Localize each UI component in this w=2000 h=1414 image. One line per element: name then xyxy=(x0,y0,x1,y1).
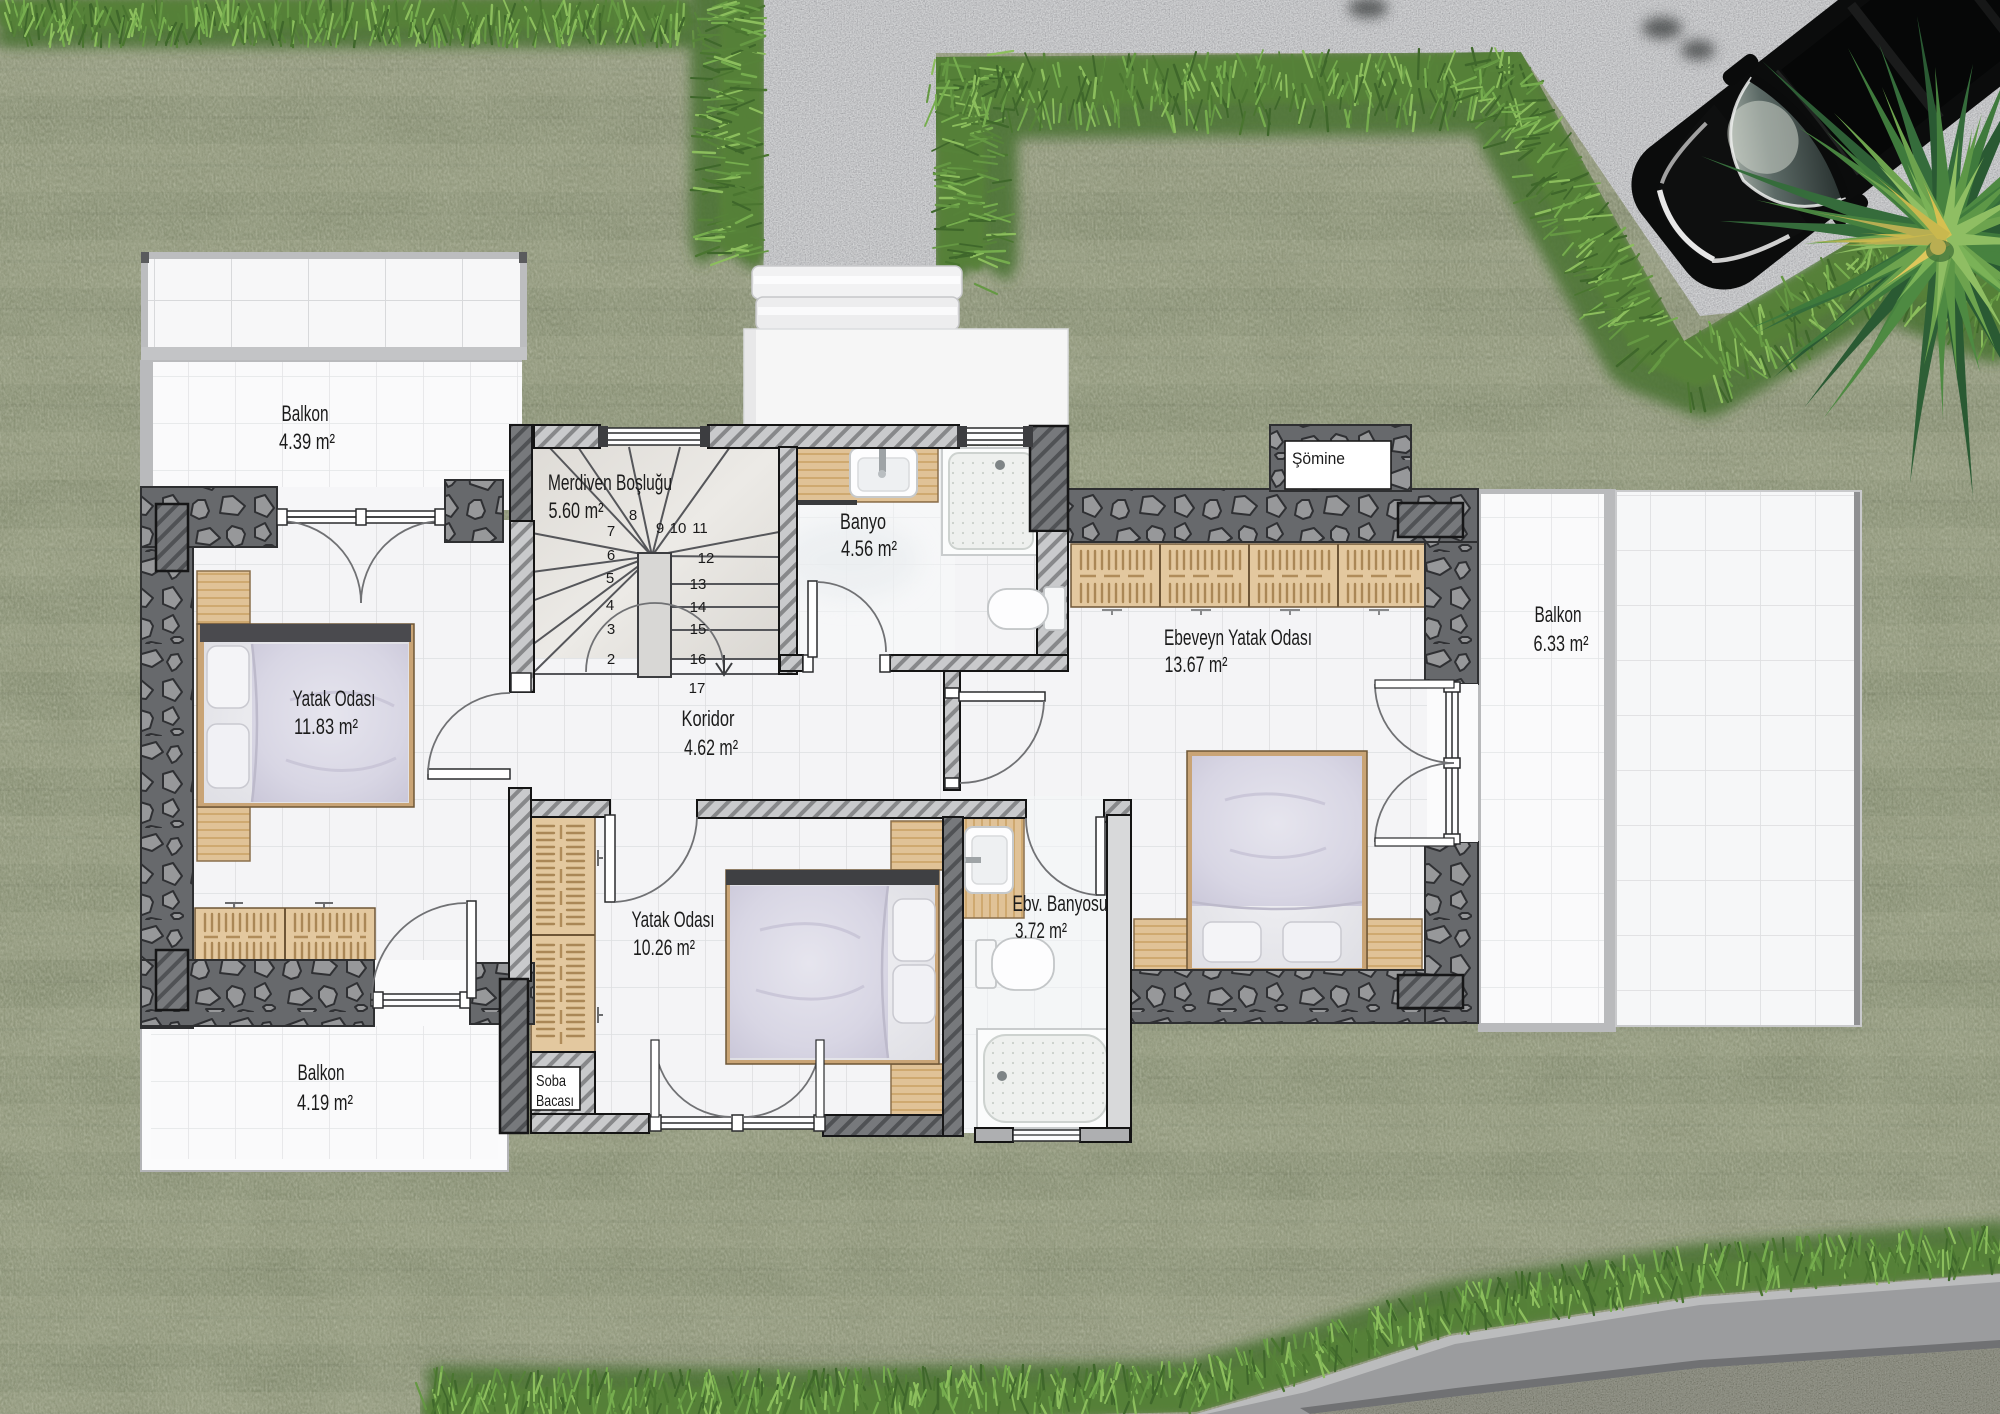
svg-text:Banyo: Banyo xyxy=(840,509,886,534)
svg-text:9: 9 xyxy=(656,520,664,537)
svg-text:13.67 m²: 13.67 m² xyxy=(1165,652,1228,677)
svg-text:5.60 m²: 5.60 m² xyxy=(549,498,604,523)
svg-text:Yatak Odası: Yatak Odası xyxy=(632,907,715,932)
svg-text:4.39 m²: 4.39 m² xyxy=(279,429,335,454)
svg-text:10: 10 xyxy=(670,520,687,537)
svg-text:11: 11 xyxy=(692,520,708,537)
svg-text:4.62 m²: 4.62 m² xyxy=(684,735,738,760)
svg-text:12: 12 xyxy=(698,550,715,567)
svg-text:Ebeveyn Yatak Odası: Ebeveyn Yatak Odası xyxy=(1164,625,1312,650)
svg-text:Balkon: Balkon xyxy=(1535,602,1582,627)
svg-text:3.72 m²: 3.72 m² xyxy=(1015,918,1067,943)
svg-text:15: 15 xyxy=(690,621,707,638)
svg-text:Yatak Odası: Yatak Odası xyxy=(293,686,376,711)
svg-text:16: 16 xyxy=(690,651,707,668)
svg-text:6: 6 xyxy=(607,547,615,564)
svg-text:Ebv. Banyosu: Ebv. Banyosu xyxy=(1013,891,1108,916)
svg-text:10.26 m²: 10.26 m² xyxy=(633,935,695,960)
svg-text:14: 14 xyxy=(690,599,707,616)
svg-text:4.19 m²: 4.19 m² xyxy=(297,1090,353,1115)
svg-text:7: 7 xyxy=(607,523,615,540)
svg-text:13: 13 xyxy=(690,576,707,593)
svg-text:Bacası: Bacası xyxy=(536,1093,574,1110)
svg-text:3: 3 xyxy=(607,621,615,638)
svg-text:Balkon: Balkon xyxy=(282,401,329,426)
svg-text:Soba: Soba xyxy=(536,1073,566,1090)
svg-text:Koridor: Koridor xyxy=(682,706,735,731)
svg-text:6.33 m²: 6.33 m² xyxy=(1534,631,1589,656)
svg-text:4.56 m²: 4.56 m² xyxy=(841,536,897,561)
svg-text:8: 8 xyxy=(629,507,637,524)
svg-text:11.83 m²: 11.83 m² xyxy=(294,714,358,739)
svg-text:17: 17 xyxy=(689,680,706,697)
svg-text:Şömine: Şömine xyxy=(1292,449,1345,468)
svg-text:Balkon: Balkon xyxy=(298,1060,345,1085)
svg-text:2: 2 xyxy=(607,651,615,668)
svg-text:4: 4 xyxy=(606,597,614,614)
svg-text:Merdiven Boşluğu: Merdiven Boşluğu xyxy=(548,470,672,495)
svg-text:5: 5 xyxy=(606,570,614,587)
